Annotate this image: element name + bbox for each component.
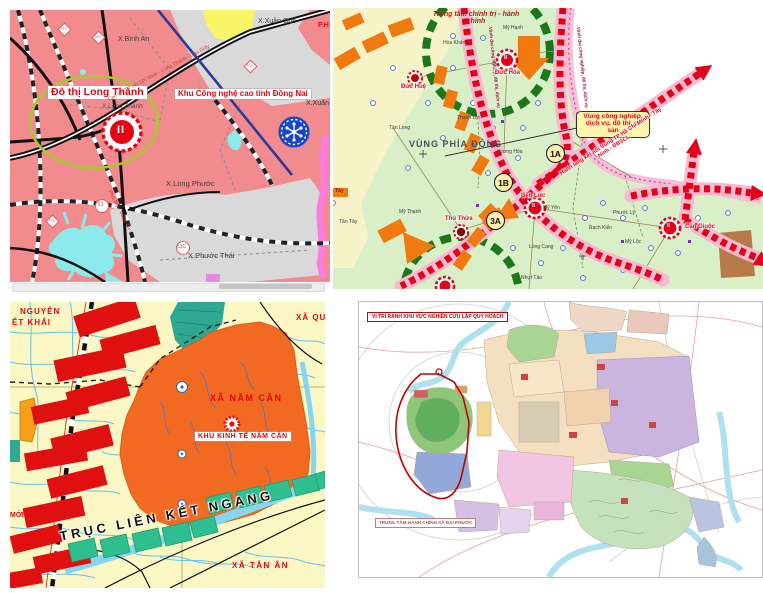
expressway-label: Cao tốc TP Hồ Chí Minh - Long Thành - Dầ… bbox=[102, 62, 216, 79]
label-nguyen-viet-khai-1: NGUYÊN bbox=[20, 308, 60, 316]
corridor-ring-label-2: Vành đai công nghiệp, đô thị, dịch vụ bbox=[541, 56, 622, 73]
town-my-loc: Mỹ Lộc bbox=[625, 240, 641, 245]
town-ben-luc: Bến Lức bbox=[521, 193, 545, 199]
town-tay-cut: Tây bbox=[335, 189, 344, 194]
shield-770: 770 bbox=[246, 64, 253, 68]
town-my-hanh: Mỹ Hạnh bbox=[503, 26, 523, 31]
commune-long-thanh: X.Long Thành bbox=[102, 104, 143, 111]
town-duc-hue: Đức Huệ bbox=[401, 84, 426, 90]
hightech-hub-icon bbox=[279, 117, 309, 147]
commune-binh-an: X.Bình An bbox=[118, 36, 149, 43]
town-duc-hoa: Đức Hòa bbox=[495, 70, 520, 76]
expressway2-label: Phú Mỹ - Vũng Tàu bbox=[96, 200, 142, 217]
corridor-ring-label-1: Vành đai công nghiệp, đô thị, dịch vụ bbox=[453, 56, 534, 73]
town-long-cang: Long Cang bbox=[529, 245, 553, 250]
label-xa-qu: XÃ QU bbox=[296, 314, 325, 322]
map-long-thanh: 767 769 770 775 51 51C II X.Bình An X.Xu… bbox=[10, 10, 330, 282]
map-collage: 767 769 770 775 51 51C II X.Bình An X.Xu… bbox=[0, 0, 763, 593]
town-thu-thua: Thủ Thừa bbox=[445, 216, 473, 222]
admin-center-title: Trung tâm chính trị - hành chính bbox=[431, 11, 521, 26]
horizontal-scrollbar bbox=[12, 283, 325, 292]
study-area-title-box: VỊ TRÍ RANH KHU VỰC NGHIÊN CỨU LẬP QUY H… bbox=[367, 312, 508, 322]
corridor-link-label: Hành lang kết nối Vùng TP Hồ Chí Minh - … bbox=[553, 136, 673, 153]
label-khu-kinh-te: KHU KINH TẾ NĂM CĂN bbox=[195, 432, 291, 441]
town-hoa-khanh: Hòa Khánh bbox=[443, 41, 468, 46]
marker-ii-duc-hoa: II bbox=[504, 56, 507, 62]
shield-51c: 51C bbox=[177, 245, 186, 250]
town-rach-kien: Rạch Kiến bbox=[589, 226, 612, 231]
admin-center-box: TRUNG TÂM HÀNH CHÍNH XÃ ĐẠI PHƯỚC bbox=[375, 518, 476, 528]
town-my-yen: Mỹ Yên bbox=[543, 206, 560, 211]
commune-phuoc-thai: X.Phước Thái bbox=[188, 252, 235, 260]
town-tan-tay: Tân Tây bbox=[339, 220, 357, 225]
label-ph: P.H bbox=[318, 22, 329, 29]
label-nguyen-viet-khai-2: ỆT KHẢI bbox=[12, 319, 51, 327]
map-dai-phuoc: VỊ TRÍ RANH KHU VỰC NGHIÊN CỨU LẬP QUY H… bbox=[358, 301, 763, 578]
map-nam-can: NGUYÊN ỆT KHẢI XÃ QU MỚI XÃ NĂM CĂN KHU … bbox=[10, 302, 325, 588]
marker-ii-label: II bbox=[117, 125, 125, 137]
hightech-park-label: Khu Công nghệ cao tỉnh Đồng Nai bbox=[175, 89, 311, 99]
gear-icon bbox=[225, 417, 239, 431]
nam-can-basemap bbox=[10, 302, 325, 588]
town-can-giuoc: Cần Giuộc bbox=[685, 224, 715, 230]
shield-769: 769 bbox=[94, 35, 101, 39]
shield-767: 767 bbox=[60, 27, 67, 31]
commune-xuan-que: X.Xuân Quế bbox=[258, 18, 296, 25]
commune-xuan-d: X.Xuân Đ bbox=[306, 100, 330, 107]
scrollbar-thumb bbox=[219, 284, 312, 289]
badge-1b: 1B bbox=[494, 173, 513, 192]
dai-phuoc-plan bbox=[359, 302, 762, 577]
town-my-thanh: Mỹ Thạnh bbox=[399, 210, 421, 215]
label-moi: MỚI bbox=[10, 512, 24, 519]
town-thanh-loi: Thạnh Lợi bbox=[457, 116, 480, 121]
marker-ii-can-giuoc: II bbox=[667, 224, 670, 230]
commune-long-phuoc: X.Long Phước bbox=[166, 180, 215, 188]
label-xa-nam-can: XÃ NĂM CĂN bbox=[210, 394, 283, 403]
map-vung-phia-dong: 1A 1B 3A Vùng công nghiệp, dịch vụ, đô t… bbox=[333, 8, 763, 289]
marker-ii-ben-luc: II bbox=[532, 204, 535, 210]
town-phuoc-ly: Phước Lý bbox=[613, 211, 635, 216]
shield-775: 775 bbox=[48, 219, 55, 223]
long-thanh-basemap bbox=[10, 10, 330, 282]
town-tan-long: Tân Long bbox=[389, 126, 410, 131]
town-luong-hoa: Lương Hòa bbox=[497, 150, 523, 155]
town-nhut-tao: Nhựt Tảo bbox=[521, 276, 542, 281]
label-xa-tan-an: XÃ TÂN ÂN bbox=[232, 562, 289, 570]
region-vung-phia-dong: VÙNG PHÍA ĐÔNG bbox=[409, 140, 502, 149]
label-truc-lien-ket: TRỤC LIÊN KẾT NGANG bbox=[58, 508, 275, 525]
badge-3a: 3A bbox=[486, 211, 505, 230]
